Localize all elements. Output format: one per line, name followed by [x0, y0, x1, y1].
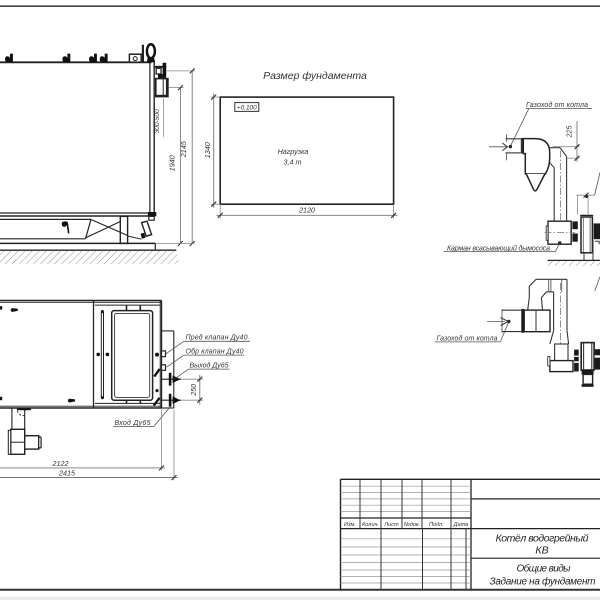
svg-text:Котёл водогрейный: Котёл водогрейный [496, 533, 589, 545]
svg-text:250: 250 [191, 384, 198, 397]
svg-text:Газоход от котла: Газоход от котла [526, 101, 588, 109]
svg-text:Нагрузка: Нагрузка [278, 147, 309, 156]
svg-text:2415: 2415 [58, 469, 76, 478]
svg-text:300-500: 300-500 [154, 109, 161, 134]
svg-text:Общие виды: Общие виды [517, 563, 572, 575]
svg-text:Колич.: Колич. [362, 522, 379, 528]
svg-text:225: 225 [566, 126, 573, 139]
svg-text:№док.: №док. [404, 522, 420, 528]
svg-text:Карман всасывающий дымососа: Карман всасывающий дымососа [447, 244, 550, 252]
svg-text:+0,100: +0,100 [237, 105, 257, 112]
svg-text:2120: 2120 [298, 206, 315, 215]
svg-text:Пред клапан Ду40: Пред клапан Ду40 [186, 334, 248, 342]
svg-text:1940: 1940 [167, 155, 176, 171]
svg-text:КВ: КВ [535, 545, 548, 557]
svg-text:Лист: Лист [383, 522, 399, 528]
svg-text:Задание на фундамент: Задание на фундамент [490, 576, 596, 588]
svg-text:Обр клапан Ду40: Обр клапан Ду40 [186, 347, 244, 355]
svg-text:2145: 2145 [179, 140, 188, 158]
svg-text:Размер фундамента: Размер фундамента [263, 70, 367, 82]
svg-text:Газоход от котла: Газоход от котла [437, 335, 498, 343]
svg-text:3,4 т: 3,4 т [284, 157, 302, 166]
svg-text:Дата: Дата [453, 522, 469, 528]
svg-text:Изм.: Изм. [344, 522, 356, 528]
svg-text:Подп.: Подп. [429, 522, 444, 528]
svg-text:Выход Ду65: Выход Ду65 [190, 361, 229, 369]
svg-text:2122: 2122 [52, 459, 69, 468]
svg-text:Вход Ду65: Вход Ду65 [115, 419, 151, 427]
svg-text:1340: 1340 [203, 142, 212, 158]
